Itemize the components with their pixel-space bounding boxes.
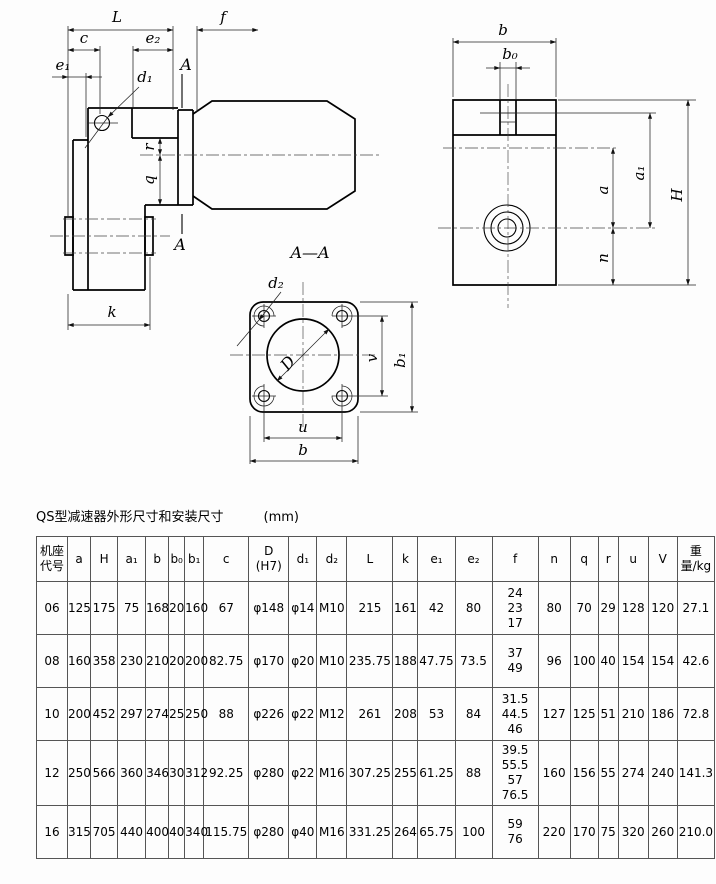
table-cell: 84 (455, 688, 492, 741)
table-cell: 400 (146, 806, 169, 859)
table-cell: 240 (648, 741, 677, 806)
table-cell: 40 (169, 806, 185, 859)
column-header: u (618, 537, 648, 582)
table-cell: 75 (118, 582, 146, 635)
table-cell: 235.75 (347, 635, 393, 688)
table-cell: 440 (118, 806, 146, 859)
table-cell: 297 (118, 688, 146, 741)
table-cell: 47.75 (418, 635, 455, 688)
table-cell: 168 (146, 582, 169, 635)
dim-label-n: n (594, 253, 612, 263)
table-title-row: QS型减速器外形尺寸和安装尺寸 (mm) (36, 506, 715, 525)
table-cell: 160 (68, 635, 91, 688)
table-cell: 82.75 (204, 635, 249, 688)
table-cell: M16 (317, 806, 347, 859)
table-cell: 210 (618, 688, 648, 741)
column-header: b₁ (185, 537, 204, 582)
column-header: f (492, 537, 538, 582)
table-cell: φ226 (249, 688, 289, 741)
table-cell: 154 (648, 635, 677, 688)
table-cell: 125 (68, 582, 91, 635)
table-cell: 115.75 (204, 806, 249, 859)
technical-drawing: L f c e₂ e₁ d₁ A A r (0, 0, 716, 500)
dim-label-c: c (80, 29, 89, 47)
column-header: c (204, 537, 249, 582)
table-row: 1631570544040040340115.75φ280φ40M16331.2… (37, 806, 715, 859)
table-cell: 67 (204, 582, 249, 635)
table-cell: φ170 (249, 635, 289, 688)
dim-label-b1: b₁ (391, 352, 409, 368)
dim-label-d2: d₂ (268, 274, 284, 292)
table-cell: 25 (169, 688, 185, 741)
table-cell: 358 (91, 635, 118, 688)
table-cell: 161 (393, 582, 418, 635)
table-cell: 274 (146, 688, 169, 741)
dim-label-H: H (668, 188, 686, 203)
table-cell: 346 (146, 741, 169, 806)
table-row: 06125175751682016067φ148φ14M102151614280… (37, 582, 715, 635)
table-cell: 210.0 (677, 806, 714, 859)
housing-outline (73, 108, 178, 290)
table-cell: φ14 (289, 582, 317, 635)
table-cell: 566 (91, 741, 118, 806)
table-cell: 250 (68, 741, 91, 806)
column-header: b (146, 537, 169, 582)
dim-label-e2: e₂ (146, 29, 161, 47)
table-cell: 20 (169, 635, 185, 688)
table-cell: M12 (317, 688, 347, 741)
column-header: b₀ (169, 537, 185, 582)
section-view: A—A D d₂ (230, 243, 418, 464)
table-cell: φ20 (289, 635, 317, 688)
side-view: b b₀ a a₁ H n (438, 21, 696, 308)
column-header: n (538, 537, 570, 582)
table-cell: M10 (317, 635, 347, 688)
dim-label-q: q (140, 175, 158, 185)
table-cell: 75 (598, 806, 618, 859)
column-header: e₁ (418, 537, 455, 582)
section-title: A—A (288, 243, 329, 262)
table-cell: 16 (37, 806, 68, 859)
table-cell: 5976 (492, 806, 538, 859)
table-cell: φ280 (249, 741, 289, 806)
table-cell: M10 (317, 582, 347, 635)
table-cell: 100 (570, 635, 598, 688)
table-cell: 315 (68, 806, 91, 859)
table-cell: 39.555.55776.5 (492, 741, 538, 806)
table-cell: 242317 (492, 582, 538, 635)
table-cell: φ40 (289, 806, 317, 859)
table-row: 122505663603463031292.25φ280φ22M16307.25… (37, 741, 715, 806)
table-cell: 154 (618, 635, 648, 688)
table-cell: 20 (169, 582, 185, 635)
table-row: 102004522972742525088φ226φ22M12261208538… (37, 688, 715, 741)
table-cell: 360 (118, 741, 146, 806)
table-cell: 274 (618, 741, 648, 806)
column-header: r (598, 537, 618, 582)
table-cell: 215 (347, 582, 393, 635)
table-cell: 160 (538, 741, 570, 806)
table-cell: 200 (185, 635, 204, 688)
side-body-outline (453, 100, 556, 285)
section-label-A-bottom: A (172, 235, 186, 254)
front-view: L f c e₂ e₁ d₁ A A r (50, 8, 382, 330)
column-header: d₂ (317, 537, 347, 582)
table-cell: 320 (618, 806, 648, 859)
table-cell: φ148 (249, 582, 289, 635)
dim-label-r: r (140, 143, 158, 151)
table-cell: 06 (37, 582, 68, 635)
table-cell: 120 (648, 582, 677, 635)
table-cell: 208 (393, 688, 418, 741)
dim-label-v: v (363, 353, 381, 362)
table-cell: 452 (91, 688, 118, 741)
column-header: d₁ (289, 537, 317, 582)
dim-label-e1: e₁ (56, 56, 71, 74)
table-cell: 40 (598, 635, 618, 688)
table-cell: 42 (418, 582, 455, 635)
table-cell: 92.25 (204, 741, 249, 806)
table-cell: 264 (393, 806, 418, 859)
table-cell: 70 (570, 582, 598, 635)
column-header: H (91, 537, 118, 582)
table-cell: 88 (455, 741, 492, 806)
table-cell: 51 (598, 688, 618, 741)
table-cell: 65.75 (418, 806, 455, 859)
table-cell: 80 (455, 582, 492, 635)
column-header: e₂ (455, 537, 492, 582)
table-cell: 3749 (492, 635, 538, 688)
table-cell: 156 (570, 741, 598, 806)
table-cell: 30 (169, 741, 185, 806)
table-cell: 55 (598, 741, 618, 806)
table-cell: 200 (68, 688, 91, 741)
table-cell: 80 (538, 582, 570, 635)
table-section: QS型减速器外形尺寸和安装尺寸 (mm) 机座代号aHa₁bb₀b₁cD(H7)… (36, 506, 715, 859)
table-cell: 127 (538, 688, 570, 741)
table-cell: 128 (618, 582, 648, 635)
table-head: 机座代号aHa₁bb₀b₁cD(H7)d₁d₂Lke₁e₂fnqruV重量/kg (37, 537, 715, 582)
table-cell: 220 (538, 806, 570, 859)
table-cell: 42.6 (677, 635, 714, 688)
section-label-A-top: A (178, 55, 192, 74)
column-header: D(H7) (249, 537, 289, 582)
column-header: q (570, 537, 598, 582)
table-cell: 73.5 (455, 635, 492, 688)
table-cell: 100 (455, 806, 492, 859)
table-cell: 331.25 (347, 806, 393, 859)
table-body: 06125175751682016067φ148φ14M102151614280… (37, 582, 715, 859)
table-cell: 230 (118, 635, 146, 688)
dim-label-b-side: b (498, 21, 508, 39)
table-cell: 08 (37, 635, 68, 688)
table-cell: 141.3 (677, 741, 714, 806)
table-cell: 261 (347, 688, 393, 741)
table-cell: 88 (204, 688, 249, 741)
column-header: 重量/kg (677, 537, 714, 582)
table-cell: 160 (185, 582, 204, 635)
table-cell: 125 (570, 688, 598, 741)
table-cell: 61.25 (418, 741, 455, 806)
column-header: a₁ (118, 537, 146, 582)
table-cell: 175 (91, 582, 118, 635)
unit-label: (mm) (264, 510, 299, 525)
dim-label-u: u (298, 418, 308, 436)
column-header: V (648, 537, 677, 582)
table-cell: 260 (648, 806, 677, 859)
table-cell: 96 (538, 635, 570, 688)
table-cell: 12 (37, 741, 68, 806)
table-cell: 53 (418, 688, 455, 741)
motor-flange-outline (178, 110, 193, 205)
dimensions-table: 机座代号aHa₁bb₀b₁cD(H7)d₁d₂Lke₁e₂fnqruV重量/kg… (36, 536, 715, 859)
table-cell: 312 (185, 741, 204, 806)
table-cell: φ280 (249, 806, 289, 859)
table-cell: 255 (393, 741, 418, 806)
table-cell: 307.25 (347, 741, 393, 806)
table-cell: 27.1 (677, 582, 714, 635)
table-cell: 705 (91, 806, 118, 859)
table-cell: 250 (185, 688, 204, 741)
table-title: QS型减速器外形尺寸和安装尺寸 (36, 506, 224, 525)
table-cell: φ22 (289, 688, 317, 741)
table-cell: 72.8 (677, 688, 714, 741)
table-cell: 340 (185, 806, 204, 859)
table-cell: 186 (648, 688, 677, 741)
table-cell: 29 (598, 582, 618, 635)
table-cell: 31.544.546 (492, 688, 538, 741)
table-cell: 210 (146, 635, 169, 688)
dim-label-b-section: b (298, 441, 308, 459)
dim-label-b0: b₀ (502, 45, 518, 63)
table-cell: 188 (393, 635, 418, 688)
page: L f c e₂ e₁ d₁ A A r (0, 0, 716, 884)
dim-label-d1: d₁ (137, 68, 153, 86)
dim-label-k: k (107, 303, 116, 321)
table-cell: 170 (570, 806, 598, 859)
column-header: k (393, 537, 418, 582)
dim-label-f: f (219, 8, 228, 26)
table-cell: 10 (37, 688, 68, 741)
column-header: a (68, 537, 91, 582)
dim-label-a1: a₁ (630, 166, 648, 181)
table-cell: M16 (317, 741, 347, 806)
table-cell: φ22 (289, 741, 317, 806)
dim-label-a: a (594, 186, 612, 195)
dim-label-L: L (111, 8, 122, 26)
column-header: L (347, 537, 393, 582)
table-row: 081603582302102020082.75φ170φ20M10235.75… (37, 635, 715, 688)
column-header: 机座代号 (37, 537, 68, 582)
